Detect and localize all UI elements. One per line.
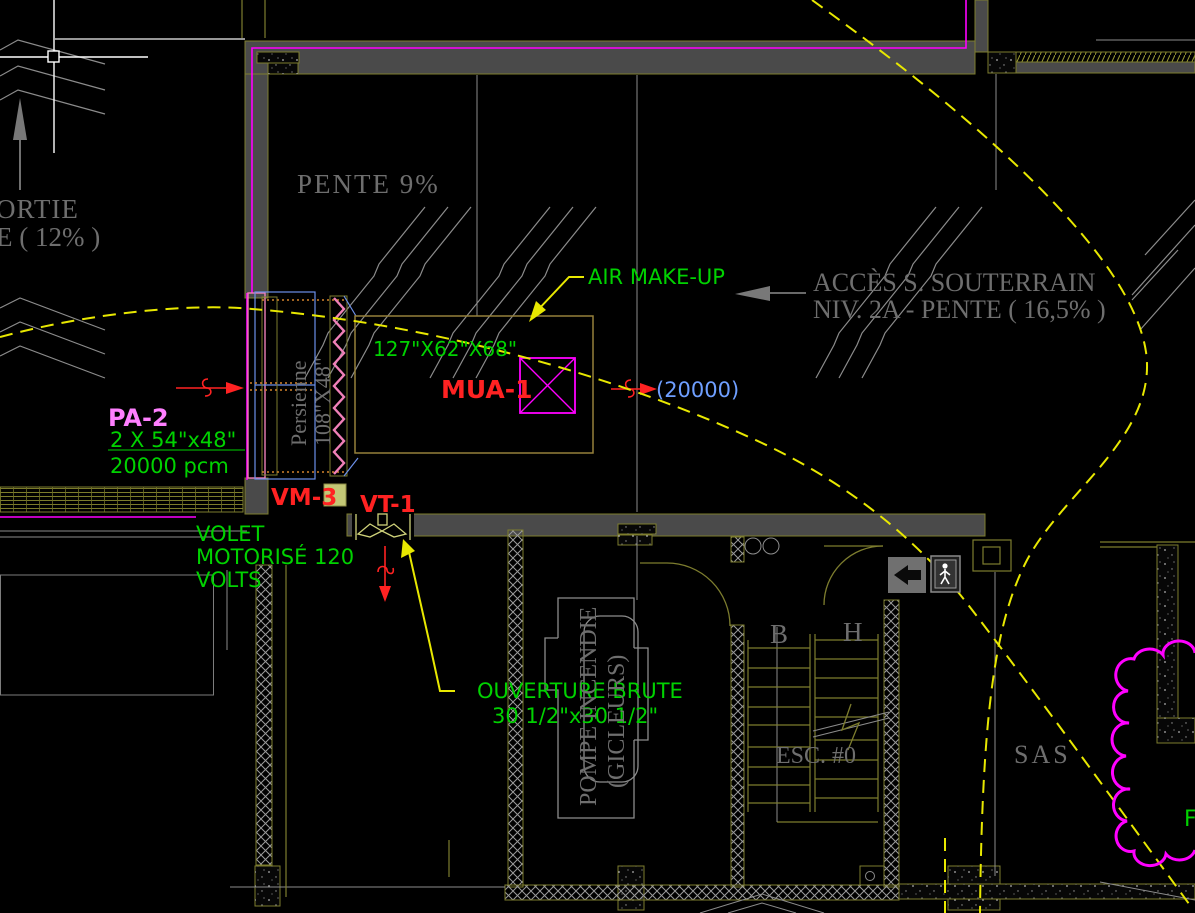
label-pompe-1: POMPE INCENDIE: [576, 607, 602, 806]
label-pompe-2: (GICLEURS): [604, 655, 630, 788]
label-mua-flow: (20000): [656, 378, 739, 402]
access-direction-arrow: [735, 286, 806, 301]
label-persienne-2: 108"X48": [310, 357, 335, 446]
label-mua-tag: MUA-1: [441, 375, 533, 404]
label-pente12: E ( 12% ): [0, 222, 100, 252]
label-volet-2: MOTORISÉ 120: [196, 544, 354, 569]
label-volet-1: VOLET: [196, 522, 264, 546]
label-pa2-flow: 20000 pcm: [110, 454, 229, 478]
cad-floor-plan: ORTIE E ( 12% ) PENTE 9% ACCÈS S. SOUTER…: [0, 0, 1195, 913]
stair-treads-left: [748, 648, 810, 803]
mua-flow-arrow: [611, 380, 657, 397]
ramp-direction-arrow: [13, 98, 27, 190]
wall-end-jamb: [973, 540, 1011, 571]
floor-plan-canvas: ORTIE E ( 12% ) PENTE 9% ACCÈS S. SOUTER…: [0, 0, 1195, 913]
label-air-makeup: AIR MAKE-UP: [588, 265, 725, 289]
label-mua-dims: 127"X62"X68": [373, 337, 517, 361]
ramp-grating: [0, 487, 243, 512]
door-pump-room: [640, 563, 730, 626]
exit-arrow-sign: [888, 557, 926, 593]
label-vt1-tag: VT-1: [360, 492, 416, 518]
door-stairwell: [824, 546, 883, 605]
label-pa2-size: 2 X 54"x48": [110, 428, 236, 452]
exit-man-sign: [931, 556, 960, 592]
slope-chevrons-right: [1132, 200, 1195, 330]
door-hardware-circles: [745, 538, 779, 554]
revision-cloud: [1112, 641, 1195, 866]
label-acces-1: ACCÈS S. SOUTERRAIN: [813, 268, 1096, 297]
label-rev-partial: F: [1184, 807, 1195, 832]
label-volet-3: VOLTS: [196, 568, 262, 592]
stair-treads-right: [815, 640, 878, 798]
label-sortie: ORTIE: [0, 194, 79, 224]
label-vm3-tag: VM-3: [271, 485, 337, 511]
label-pente9: PENTE 9%: [297, 169, 440, 199]
leader-ouverture: [401, 539, 455, 691]
label-esc: ESC. #0: [776, 743, 856, 769]
vt1-flow-arrow: [378, 546, 393, 602]
label-stair-h: H: [843, 617, 863, 647]
label-acces-2: NIV. 2A - PENTE ( 16,5% ): [813, 295, 1106, 324]
label-sas: SAS: [1014, 740, 1071, 769]
label-persienne-1: Persienne: [286, 360, 311, 446]
pa2-flow-arrow: [176, 379, 244, 396]
label-stair-b: B: [770, 619, 788, 649]
